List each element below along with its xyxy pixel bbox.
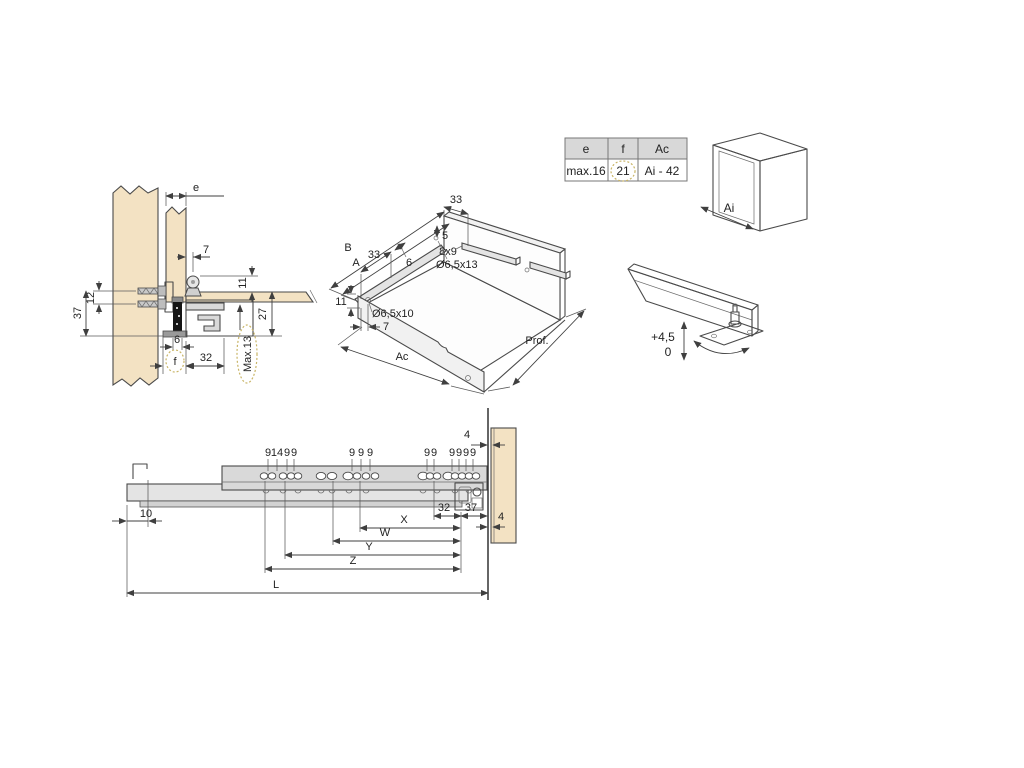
table-value-Ac: Ai - 42 [645, 164, 680, 178]
rail-end [752, 305, 758, 336]
technical-drawing-page: e 7 11 27 12 37 6 [0, 0, 1024, 768]
cabinet-side-panel [113, 186, 158, 386]
dim-10-label: 10 [140, 508, 152, 520]
dim-X-label: X [400, 514, 408, 526]
clamp-lever [173, 302, 182, 331]
dim-33-label: 33 [368, 249, 380, 261]
g3-d1: 9 [431, 447, 437, 459]
g1-d2: 9 [284, 447, 290, 459]
dim-12-label: 12 [85, 292, 97, 304]
g4-d1: 9 [456, 447, 462, 459]
table-value-e: max.16 [566, 164, 606, 178]
dim-6-label: 6 [174, 334, 180, 346]
dim-4-right-label: 4 [498, 511, 504, 523]
rail-top-face [628, 264, 758, 310]
dim-4-top-label: 4 [464, 429, 470, 441]
dim-W-label: W [380, 527, 391, 539]
dim-7-label: 7 [203, 244, 209, 256]
back-panel-edge [560, 249, 565, 320]
table-value-f: 21 [616, 164, 630, 178]
adjustment-rail-view: +4,5 0 [628, 264, 763, 360]
front-hook [133, 464, 147, 479]
dim-11-label: 11 [237, 277, 249, 288]
adjust-zero-label: 0 [665, 345, 672, 359]
dim-L-label: L [273, 579, 279, 591]
g2-d1: 9 [358, 447, 364, 459]
dim-5-label: 5 [442, 230, 448, 242]
g2-d0: 9 [349, 447, 355, 459]
mounting-pin [185, 276, 201, 296]
rotation-arrow [694, 341, 749, 354]
dim-32-sv-label: 32 [438, 502, 450, 514]
cabinet-cube: Ai [701, 133, 807, 231]
dim-Ai-label: Ai [724, 201, 735, 215]
rail-front-face [628, 269, 752, 336]
dim-Prof-label: Prof. [525, 335, 548, 347]
g2-d2: 9 [367, 447, 373, 459]
g1-d3: 9 [291, 447, 297, 459]
dim-7-3d-label: 7 [383, 321, 389, 333]
dim-32-label: 32 [200, 352, 212, 364]
g4-d2: 9 [463, 447, 469, 459]
g4-d0: 9 [449, 447, 455, 459]
dim-f-label: f [173, 356, 177, 368]
cross-section-view: e 7 11 27 12 37 6 [72, 182, 317, 386]
dim-Z-label: Z [350, 555, 357, 567]
adjust-pin [729, 304, 741, 327]
g4-d3: 9 [470, 447, 476, 459]
dim-37-label: 37 [72, 307, 84, 319]
dim-B-label: B [344, 242, 351, 254]
drawing-canvas: e 7 11 27 12 37 6 [0, 0, 1024, 768]
runner-profile-hook [198, 315, 220, 331]
dim-11-3d-label: 11 [335, 296, 346, 308]
dim-max13-label: Max.13 [242, 336, 254, 372]
drawer-3d-view: 33 5 8x9 Ø6,5x13 B A 33 6 11 Ø6,5x10 [329, 194, 586, 394]
g3-d0: 9 [424, 447, 430, 459]
drawer-front-panel-section [166, 207, 186, 302]
dim-37-sv-label: 37 [465, 502, 477, 514]
cube-side [760, 149, 807, 231]
dim-e-label: e [193, 182, 199, 194]
table-header-e: e [583, 142, 590, 156]
dim-A-label: A [352, 257, 360, 269]
dim-6-3d-label: 6 [406, 257, 412, 269]
adjust-plus-label: +4,5 [651, 330, 675, 344]
dim-Y-label: Y [365, 541, 373, 553]
slide-side-view: 9 14 9 9 9 9 9 9 9 9 9 9 9 4 10 [112, 408, 516, 600]
cube-top [713, 133, 807, 161]
g1-d1: 14 [271, 447, 283, 459]
table-header-Ac: Ac [655, 142, 669, 156]
spec-table: e f Ac max.16 21 Ai - 42 [565, 138, 687, 181]
drawer-member-lower [140, 501, 462, 507]
dim-33-top-label: 33 [450, 194, 462, 206]
dim-hole-back-label: Ø6,5x13 [436, 259, 478, 271]
dim-Ac-label: Ac [396, 351, 409, 363]
runner-profile-flange [186, 303, 224, 310]
dim-27-label: 27 [257, 308, 269, 320]
dim-hole-front-label: Ø6,5x10 [372, 308, 414, 320]
